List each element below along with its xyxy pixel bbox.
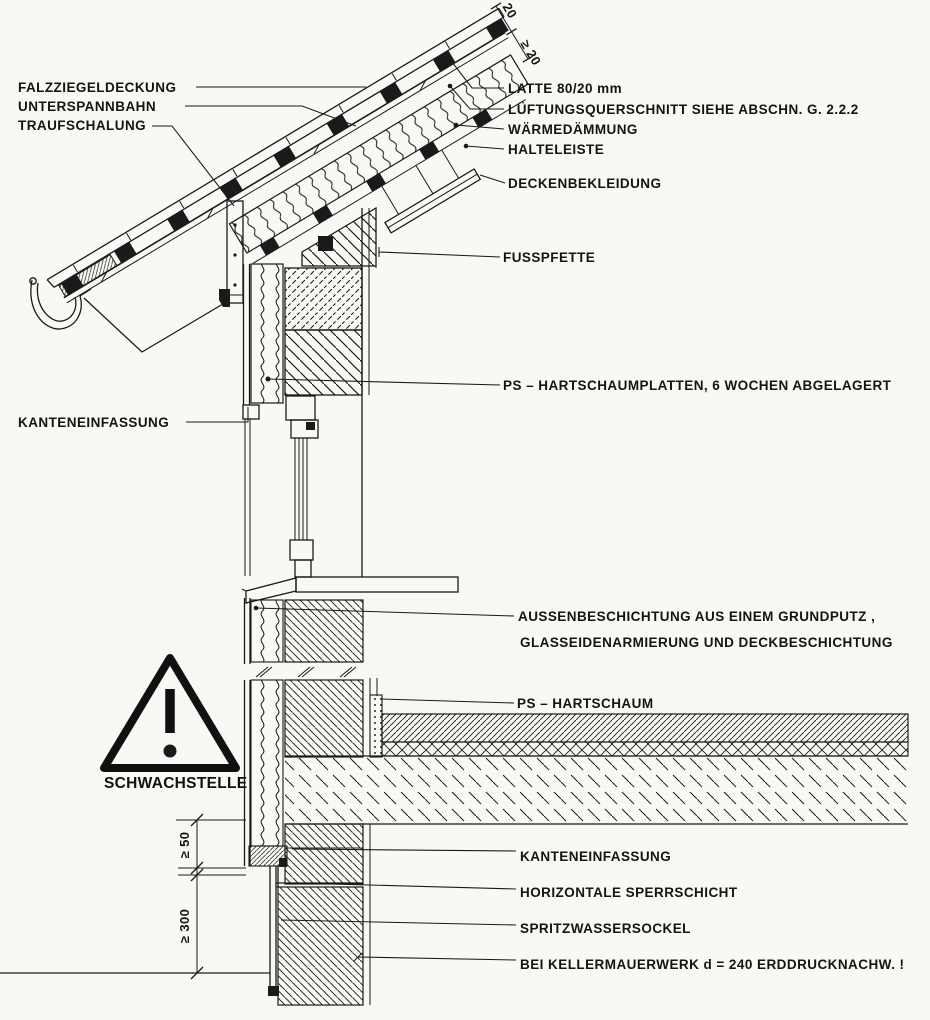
concrete-slab [285,756,908,824]
label-kanteneinfassung-unten: KANTENEINFASSUNG [520,849,671,864]
wall-upper [243,208,376,577]
roof-insulation-band [229,55,528,253]
leader-kellermauerwerk [354,953,516,961]
ring-beam [285,330,362,395]
label-ps-hartschaum: PS – HARTSCHAUM [517,696,654,711]
label-ps-hartschaumplatten: PS – HARTSCHAUMPLATTEN, 6 WOCHEN ABGELAG… [503,378,892,393]
leader-halteleiste [466,146,504,149]
label-unterspannbahn: UNTERSPANNBAHN [18,99,156,114]
leader-traufschalung [152,126,234,206]
fascia-board [227,201,243,303]
label-waermedaemmung: WÄRMEDÄMMUNG [508,122,638,137]
soffit-wedge [84,298,228,352]
label-aussenbeschichtung-1: AUSSENBESCHICHTUNG AUS EINEM GRUNDPUTZ , [518,609,875,624]
label-spritzwassersockel: SPRITZWASSERSOCKEL [520,921,691,936]
window-sill [296,577,458,592]
ceiling-cladding-band [385,169,480,233]
label-horizontale-sperrschicht: HORIZONTALE SPERRSCHICHT [520,885,738,900]
label-latte: LATTE 80/20 mm [508,81,622,96]
sockel-board [270,866,276,992]
leader-fusspfette [379,247,500,257]
label-lueftungsquerschnitt: LÜFTUNGSQUERSCHNITT SIEHE ABSCHN. G. 2.2… [508,102,859,117]
sill-drip-edge [246,578,296,603]
label-falzziegeldeckung: FALZZIEGELDECKUNG [18,80,176,95]
label-deckenbekleidung: DECKENBEKLEIDUNG [508,176,661,191]
masonry-below-slab [285,824,363,884]
roof-membrane [64,32,509,302]
label-halteleiste: HALTELEISTE [508,142,604,157]
construction-detail-drawing: 20 ≥ 20 ≥ 50 ≥ 300 SCHWACHSTELLE FALZZIE… [0,0,930,1020]
kanteneinfassung-profile-upper [243,405,259,419]
window-section [242,396,458,603]
masonry-block [285,268,362,330]
dimension-base: ≥ 50 ≥ 300 [176,814,246,979]
roof-battens [61,18,509,295]
window-glazing [295,438,307,540]
section-break-marks [256,667,356,677]
label-traufschalung: TRAUFSCHALUNG [18,118,146,133]
blueprint-page: 20 ≥ 20 ≥ 50 ≥ 300 SCHWACHSTELLE FALZZIE… [0,0,930,1020]
label-fusspfette: FUSSPFETTE [503,250,595,265]
label-aussenbeschichtung-2: GLASSEIDENARMIERUNG UND DECKBESCHICHTUNG [520,635,893,650]
wall-insulation-upper [251,264,283,403]
ps-edge-strip [370,695,382,757]
leader-kanteneinfassung-oben [186,407,248,422]
floor-insulation [382,742,908,756]
window-bottom-frame [290,540,313,560]
basement-masonry [278,887,363,1005]
annotation-labels: FALZZIEGELDECKUNG UNTERSPANNBAHN TRAUFSC… [18,80,904,972]
label-kellermauerwerk: BEI KELLERMAUERWERK d = 240 ERDDRUCKNACH… [520,957,904,972]
dim-sockel-ueberstand: ≥ 50 [177,832,192,859]
warning-symbol: SCHWACHSTELLE [104,658,247,792]
window-head [286,396,315,420]
dim-lueftung-min: ≥ 20 [518,37,545,68]
fusspfette-purlin [302,208,376,266]
floor-screed [382,714,908,742]
masonry-above-slab [285,680,363,757]
dim-spritzwasser-hoehe: ≥ 300 [177,909,192,943]
eave-detail [30,201,243,352]
label-kanteneinfassung-oben: KANTENEINFASSUNG [18,415,169,430]
warning-label: SCHWACHSTELLE [104,775,247,792]
edge-board [244,264,250,405]
wall-insulation-lower [251,680,283,846]
anchor-bolt [318,236,333,251]
leader-ps-hartschaum [381,699,514,703]
leader-deckenbekleidung [480,175,505,183]
edge-trim-corner [219,289,230,307]
